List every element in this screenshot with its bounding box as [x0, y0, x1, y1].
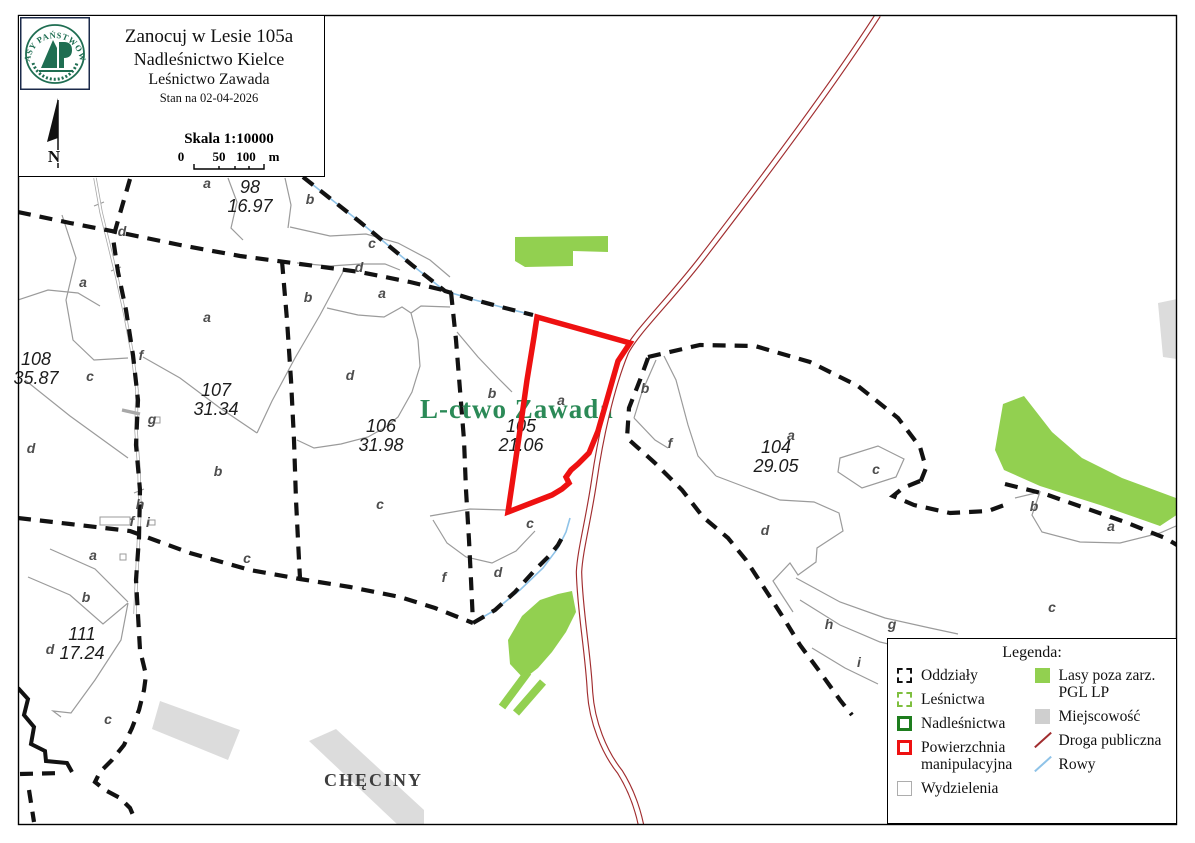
- legend-item-lasy: Lasy poza zarz. PGL LP: [1035, 667, 1173, 701]
- legend-item-droga: Droga publiczna: [1035, 732, 1173, 749]
- subdivision-letter-f: f: [139, 347, 144, 363]
- public-road: [579, 15, 878, 825]
- svg-text:100: 100: [236, 149, 256, 164]
- oddzialy-swatch-icon: [897, 668, 912, 683]
- subdivision-letter-a: a: [79, 274, 87, 290]
- svg-text:m: m: [269, 149, 280, 164]
- rowy-swatch-icon: [1035, 757, 1050, 772]
- legend-item-oddzialy: Oddziały: [897, 667, 1035, 684]
- forest-road: [95, 178, 140, 614]
- subdivision-letter-c: c: [1048, 599, 1056, 615]
- map-title: Zanocuj w Lesie 105a: [99, 25, 319, 48]
- north-arrow-icon: N: [38, 96, 78, 176]
- legend-box: Legenda: OddziałyLeśnictwaNadleśnictwaPo…: [887, 638, 1177, 824]
- subdivision-letter-b: b: [1030, 498, 1039, 514]
- legend-label: Leśnictwa: [921, 691, 985, 708]
- subdivision-lines: [18, 178, 1176, 717]
- compartment-label-107: 10731.34: [193, 381, 238, 419]
- subdivision-letter-c: c: [368, 235, 376, 251]
- subdivision-letter-c: c: [86, 368, 94, 384]
- title-box: LASY PAŃSTWOWE Zanocuj w Lesie 105a Nadl…: [18, 15, 325, 177]
- subdivision-letter-h: h: [825, 616, 834, 632]
- svg-text:N: N: [48, 147, 61, 166]
- subdivision-letter-d: d: [46, 641, 55, 657]
- legend-item-rowy: Rowy: [1035, 756, 1173, 773]
- subdivision-letter-d: d: [494, 564, 503, 580]
- subdivision-letter-g: g: [148, 411, 157, 427]
- scale-bar: 0 50 100 m: [139, 148, 319, 174]
- compartment-label-98: 9816.97: [227, 178, 272, 216]
- subdivision-letter-b: b: [304, 289, 313, 305]
- legend-item-wydzielenia: Wydzielenia: [897, 780, 1035, 797]
- subdivision-letter-b: b: [306, 191, 315, 207]
- subdivision-letter-a: a: [1107, 518, 1115, 534]
- compartment-label-108: 10835.87: [13, 350, 58, 388]
- compartment-label-105: 10521.06: [498, 417, 543, 455]
- compartment-label-106: 10631.98: [358, 417, 403, 455]
- legend-title: Legenda:: [888, 644, 1176, 662]
- legend-column-right: Lasy poza zarz. PGL LPMiejscowośćDroga p…: [1035, 667, 1173, 821]
- subdivision-letter-c: c: [376, 496, 384, 512]
- town-label: CHĘCINY: [324, 770, 423, 791]
- lesnictwa-swatch-icon: [897, 692, 912, 707]
- legend-label: Oddziały: [921, 667, 978, 684]
- subdivision-letter-f: f: [668, 435, 673, 451]
- subdivision-letter-a: a: [203, 309, 211, 325]
- subdivision-letter-i: i: [146, 514, 150, 530]
- subdivision-letter-a: a: [787, 427, 795, 443]
- legend-item-powierzchnia: Powierzchnia manipulacyjna: [897, 739, 1035, 773]
- lasy-panstwowe-logo: LASY PAŃSTWOWE: [20, 17, 90, 90]
- svg-text:50: 50: [213, 149, 226, 164]
- subdivision-letter-d: d: [118, 223, 127, 239]
- ditch-lines: [303, 177, 570, 623]
- scale-label: Skala 1:10000: [139, 131, 319, 148]
- svg-text:0: 0: [178, 149, 185, 164]
- subdivision-letter-c: c: [526, 515, 534, 531]
- subdivision-letter-d: d: [355, 259, 364, 275]
- subdivision-letter-b: b: [214, 463, 223, 479]
- subdivision-letter-a: a: [557, 392, 565, 408]
- map-title-block: Zanocuj w Lesie 105a Nadleśnictwo Kielce…: [99, 25, 319, 107]
- subdivision-letter-b: b: [82, 589, 91, 605]
- subdivision-letter-c: c: [104, 711, 112, 727]
- legend-label: Rowy: [1059, 756, 1096, 773]
- forest-map-page: L-ctwo Zawada CHĘCINY abcddabaafcgdbdbab…: [0, 0, 1195, 843]
- subdivision-letter-f: f: [130, 513, 135, 529]
- manipulation-area-outline: [508, 317, 630, 512]
- legend-item-miejscowosc: Miejscowość: [1035, 708, 1173, 725]
- legend-label: Wydzielenia: [921, 780, 998, 797]
- subdivision-letter-d: d: [346, 367, 355, 383]
- compartment-label-111: 11117.24: [59, 625, 104, 663]
- legend-label: Miejscowość: [1059, 708, 1141, 725]
- subdivision-letter-a: a: [89, 547, 97, 563]
- compartment-label-104: 10429.05: [753, 438, 798, 476]
- subdivision-letter-d: d: [761, 522, 770, 538]
- forest-inspectorate-name: Nadleśnictwo Kielce: [99, 48, 319, 70]
- legend-item-lesnictwa: Leśnictwa: [897, 691, 1035, 708]
- forest-district-name: Leśnictwo Zawada: [99, 70, 319, 90]
- legend-column-left: OddziałyLeśnictwaNadleśnictwaPowierzchni…: [897, 667, 1035, 821]
- scale-block: Skala 1:10000 0 50 100 m: [139, 131, 319, 179]
- powierzchnia-swatch-icon: [897, 740, 912, 755]
- subdivision-letter-b: b: [641, 380, 650, 396]
- droga-swatch-icon: [1035, 733, 1050, 748]
- lasy-swatch-icon: [1035, 668, 1050, 683]
- miejscowosc-swatch-icon: [1035, 709, 1050, 724]
- subdivision-letter-f: f: [442, 569, 447, 585]
- legend-label: Nadleśnictwa: [921, 715, 1005, 732]
- subdivision-letter-b: b: [488, 385, 497, 401]
- subdivision-letter-d: d: [27, 440, 36, 456]
- legend-label: Lasy poza zarz. PGL LP: [1059, 667, 1173, 701]
- subdivision-letter-i: i: [857, 654, 861, 670]
- subdivision-letter-c: c: [872, 461, 880, 477]
- subdivision-letter-a: a: [378, 285, 386, 301]
- wydzielenia-swatch-icon: [897, 781, 912, 796]
- subdivision-letter-c: c: [243, 550, 251, 566]
- forest-district-label: L-ctwo Zawada: [420, 394, 614, 425]
- legend-label: Powierzchnia manipulacyjna: [921, 739, 1035, 773]
- subdivision-letter-h: h: [136, 496, 145, 512]
- nadlesnictwa-swatch-icon: [897, 716, 912, 731]
- subdivision-letter-g: g: [888, 616, 897, 632]
- legend-label: Droga publiczna: [1059, 732, 1162, 749]
- legend-item-nadlesnictwa: Nadleśnictwa: [897, 715, 1035, 732]
- map-date: Stan na 02-04-2026: [99, 90, 319, 107]
